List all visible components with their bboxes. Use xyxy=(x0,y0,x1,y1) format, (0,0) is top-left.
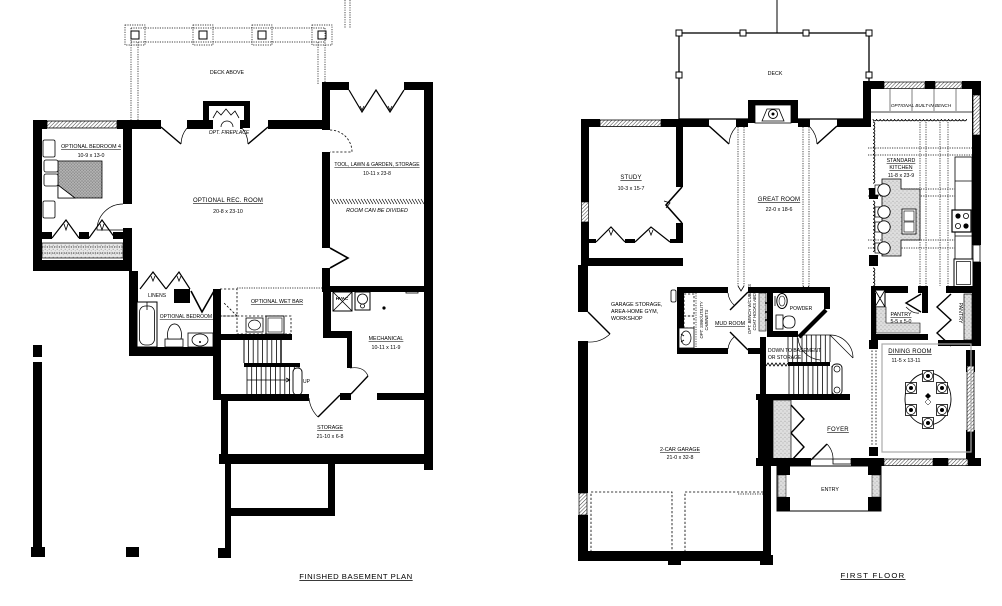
svg-text:FIRST FLOOR: FIRST FLOOR xyxy=(841,571,906,580)
svg-text:STORAGE: STORAGE xyxy=(317,425,343,431)
svg-text:DECK ABOVE: DECK ABOVE xyxy=(210,70,245,76)
svg-text:MUD ROOM: MUD ROOM xyxy=(715,321,745,327)
svg-text:STANDARD: STANDARD xyxy=(887,158,916,164)
svg-text:DINING ROOM: DINING ROOM xyxy=(888,349,932,355)
svg-text:21-10 x 6-8: 21-10 x 6-8 xyxy=(317,434,344,440)
svg-text:DOWN TO BASEMENT: DOWN TO BASEMENT xyxy=(768,348,821,354)
svg-text:2-CAR GARAGE: 2-CAR GARAGE xyxy=(660,447,700,453)
svg-text:TOOL, LAWN & GARDEN, STORAGE: TOOL, LAWN & GARDEN, STORAGE xyxy=(334,162,420,168)
svg-text:OPTIONAL BUILT-IN BENCH: OPTIONAL BUILT-IN BENCH xyxy=(891,103,952,108)
svg-text:UP: UP xyxy=(303,379,311,385)
svg-text:11-8 x 23-9: 11-8 x 23-9 xyxy=(888,173,914,179)
svg-text:ENTRY: ENTRY xyxy=(821,487,839,493)
svg-text:5-5 x 5-0: 5-5 x 5-0 xyxy=(891,319,912,325)
svg-text:GREAT ROOM: GREAT ROOM xyxy=(758,197,800,203)
svg-text:LINENS: LINENS xyxy=(148,293,167,299)
svg-text:WORKSHOP: WORKSHOP xyxy=(611,316,643,322)
svg-text:KITCHEN: KITCHEN xyxy=(889,165,912,171)
svg-text:10-9 x 13-0: 10-9 x 13-0 xyxy=(78,153,105,159)
svg-text:COAT HOOKS ABOVE: COAT HOOKS ABOVE xyxy=(752,287,757,330)
svg-text:10-11 x 23-8: 10-11 x 23-8 xyxy=(363,171,391,177)
svg-text:OR STORAGE: OR STORAGE xyxy=(768,355,802,361)
svg-text:PANTRY: PANTRY xyxy=(891,312,912,318)
svg-text:AREA-HOME GYM,: AREA-HOME GYM, xyxy=(611,309,658,315)
svg-text:GARAGE STORAGE,: GARAGE STORAGE, xyxy=(611,302,662,308)
svg-text:10-3 x 15-7: 10-3 x 15-7 xyxy=(618,186,645,192)
svg-text:21-0 x 32-8: 21-0 x 32-8 xyxy=(667,455,694,461)
svg-text:20-8 x 23-10: 20-8 x 23-10 xyxy=(213,209,243,215)
svg-text:OPTIONAL WET BAR: OPTIONAL WET BAR xyxy=(251,299,303,305)
svg-text:MECHANICAL: MECHANICAL xyxy=(369,336,404,342)
svg-text:CABINETS: CABINETS xyxy=(704,309,709,330)
svg-text:10-11 x 11-9: 10-11 x 11-9 xyxy=(372,345,401,351)
svg-text:HVAC: HVAC xyxy=(336,296,349,301)
svg-text:STUDY: STUDY xyxy=(620,175,641,181)
svg-text:FOYER: FOYER xyxy=(827,427,849,433)
svg-text:OPTIONAL BEDROOM 4: OPTIONAL BEDROOM 4 xyxy=(160,314,217,320)
svg-text:11-5 x 13-11: 11-5 x 13-11 xyxy=(892,358,921,364)
svg-text:POWDER: POWDER xyxy=(790,306,813,312)
svg-text:OPTIONAL REC. ROOM: OPTIONAL REC. ROOM xyxy=(193,198,263,204)
svg-text:OPTIONAL BEDROOM 4: OPTIONAL BEDROOM 4 xyxy=(61,144,121,150)
svg-text:FINISHED BASEMENT PLAN: FINISHED BASEMENT PLAN xyxy=(299,572,412,581)
svg-text:OPT. FIREPLACE: OPT. FIREPLACE xyxy=(209,130,250,136)
svg-text:PANTRY: PANTRY xyxy=(957,303,963,324)
svg-text:DECK: DECK xyxy=(768,71,783,77)
svg-text:ROOM CAN BE DIVIDED: ROOM CAN BE DIVIDED xyxy=(346,208,408,214)
svg-text:22-0 x 18-6: 22-0 x 18-6 xyxy=(766,207,793,213)
